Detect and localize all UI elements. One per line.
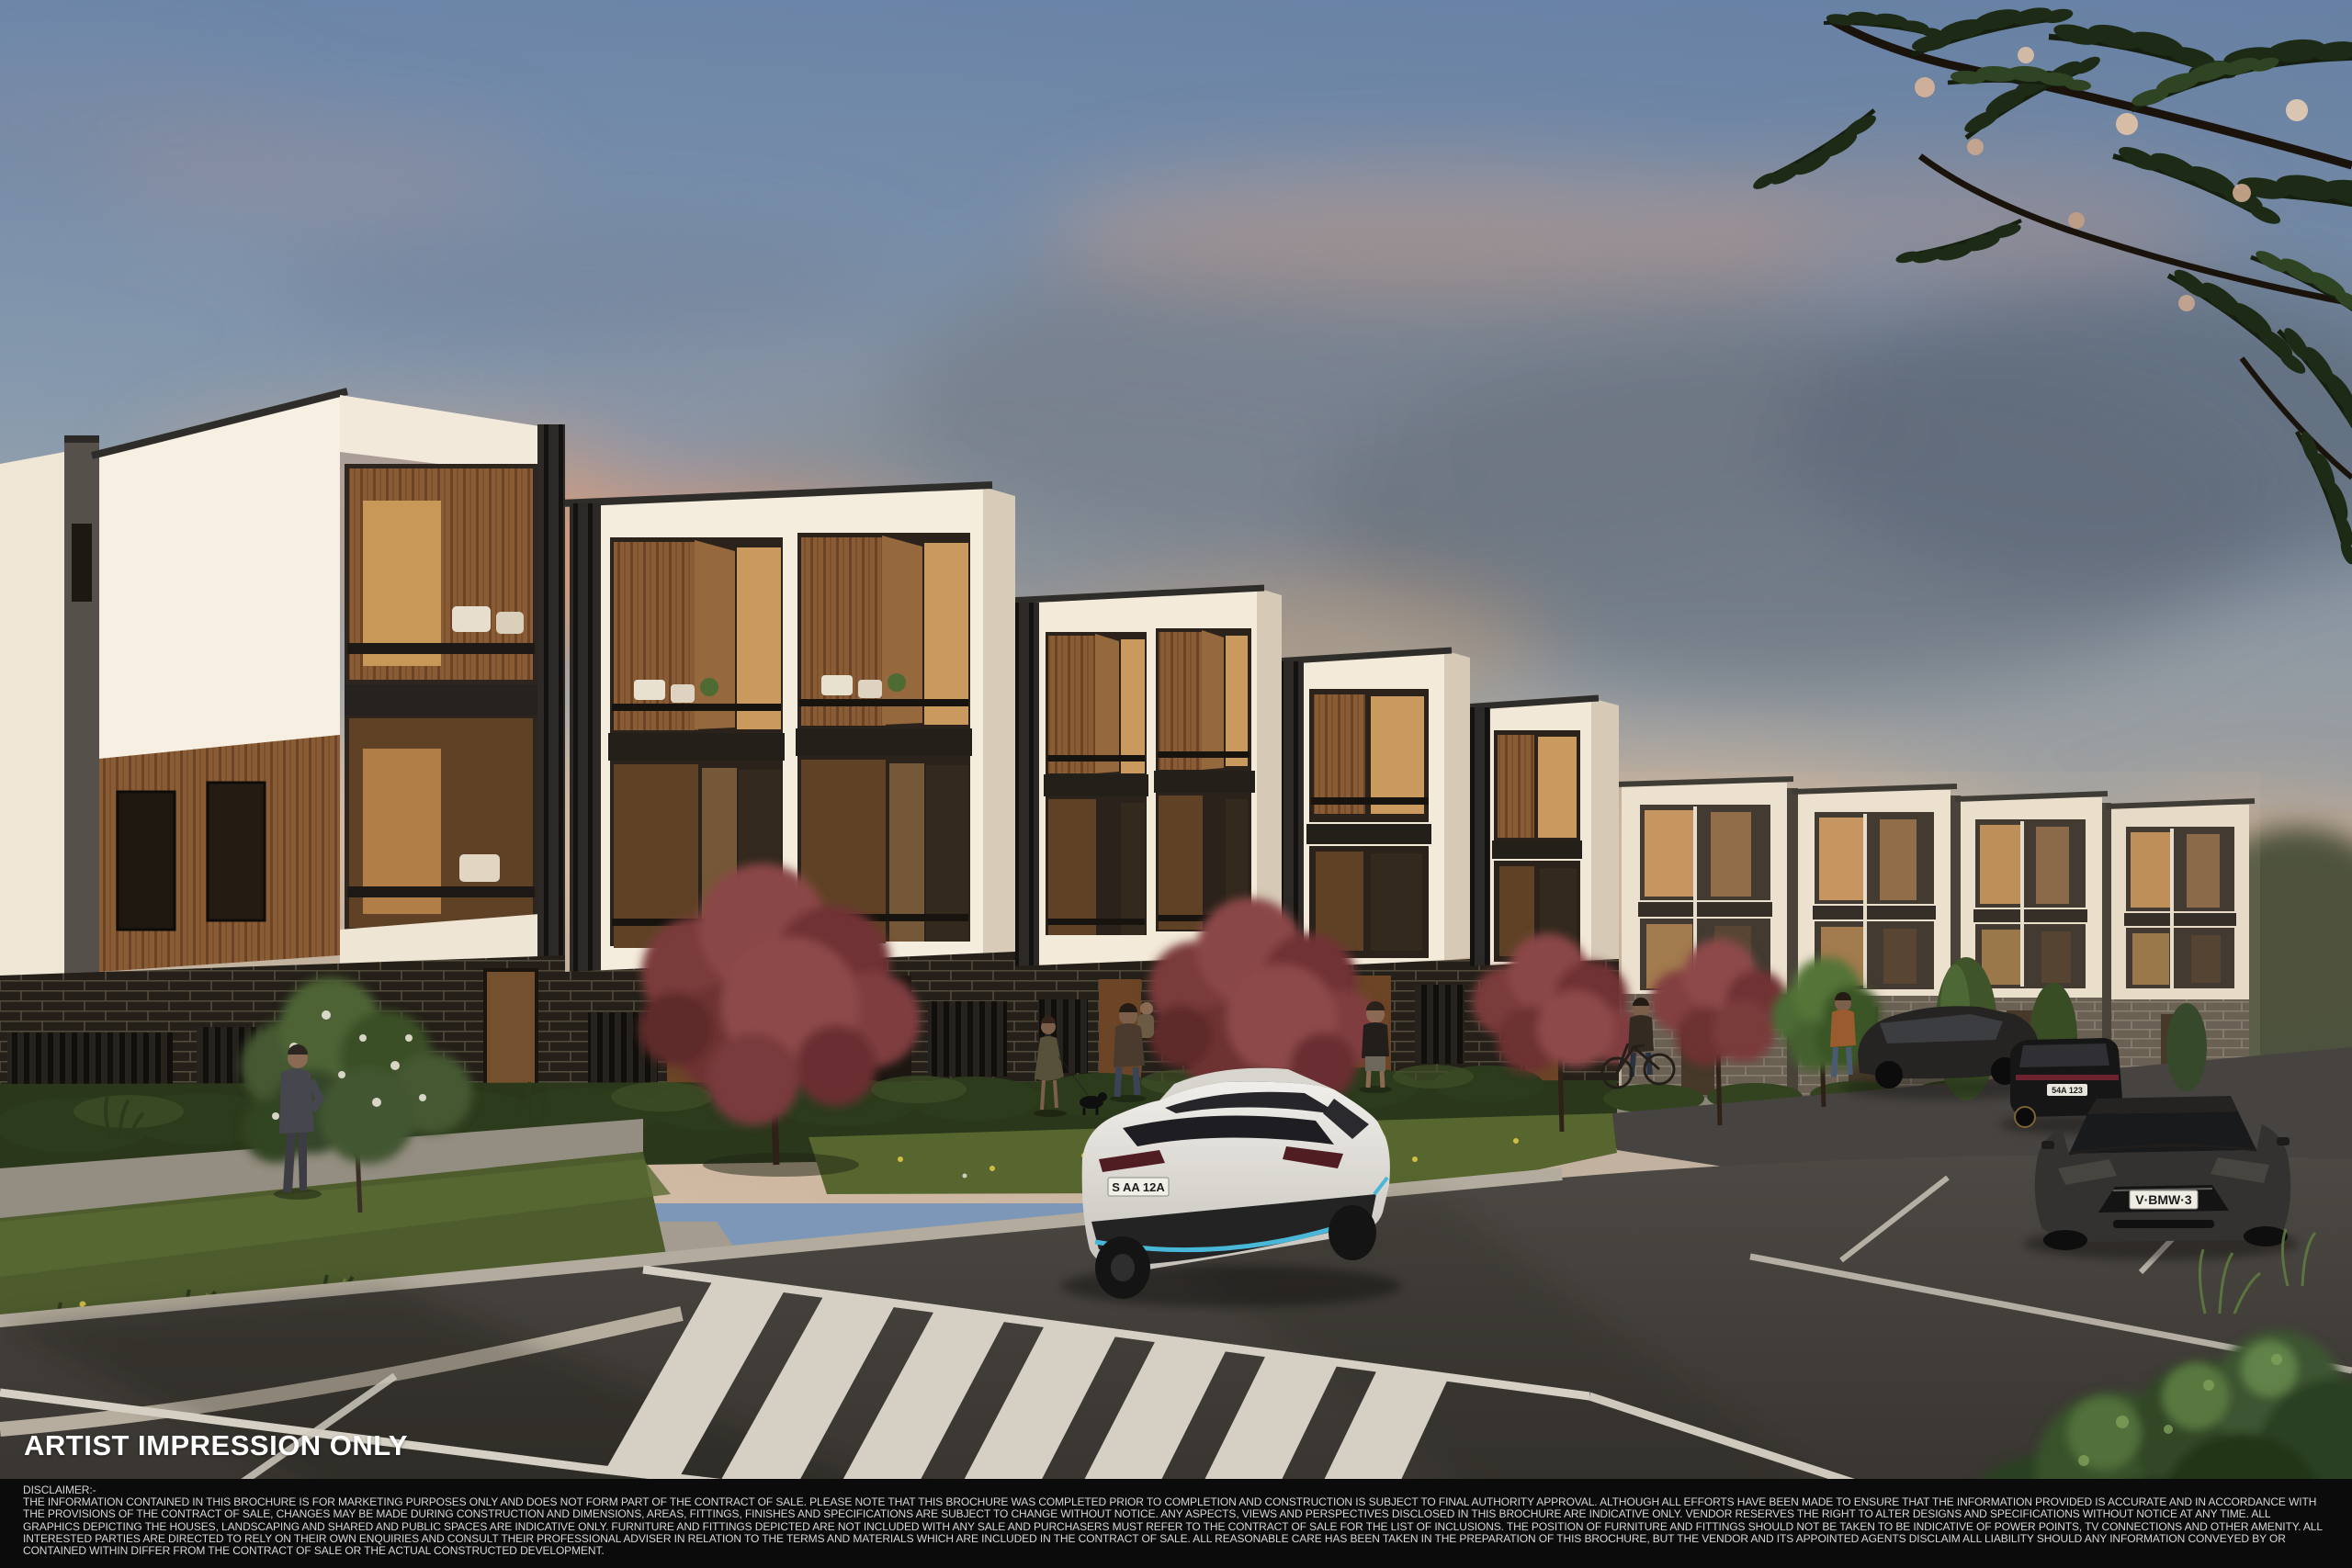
licence-plate-black-hatchback: 54A 123 bbox=[2052, 1086, 2083, 1095]
artist-impression-render: 54A 123 V·BMW·3 S AA 12A bbox=[0, 0, 2352, 1568]
render-scene: 54A 123 V·BMW·3 S AA 12A bbox=[0, 0, 2352, 1568]
disclaimer-bar: DISCLAIMER:- THE INFORMATION CONTAINED I… bbox=[0, 1479, 2352, 1568]
disclaimer-body: THE INFORMATION CONTAINED IN THIS BROCHU… bbox=[23, 1496, 2329, 1557]
licence-plate-white-hatchback: S AA 12A bbox=[1112, 1180, 1165, 1194]
artist-impression-watermark: ARTIST IMPRESSION ONLY bbox=[24, 1429, 408, 1462]
licence-plate-grey-sedan: V·BMW·3 bbox=[2135, 1192, 2192, 1207]
